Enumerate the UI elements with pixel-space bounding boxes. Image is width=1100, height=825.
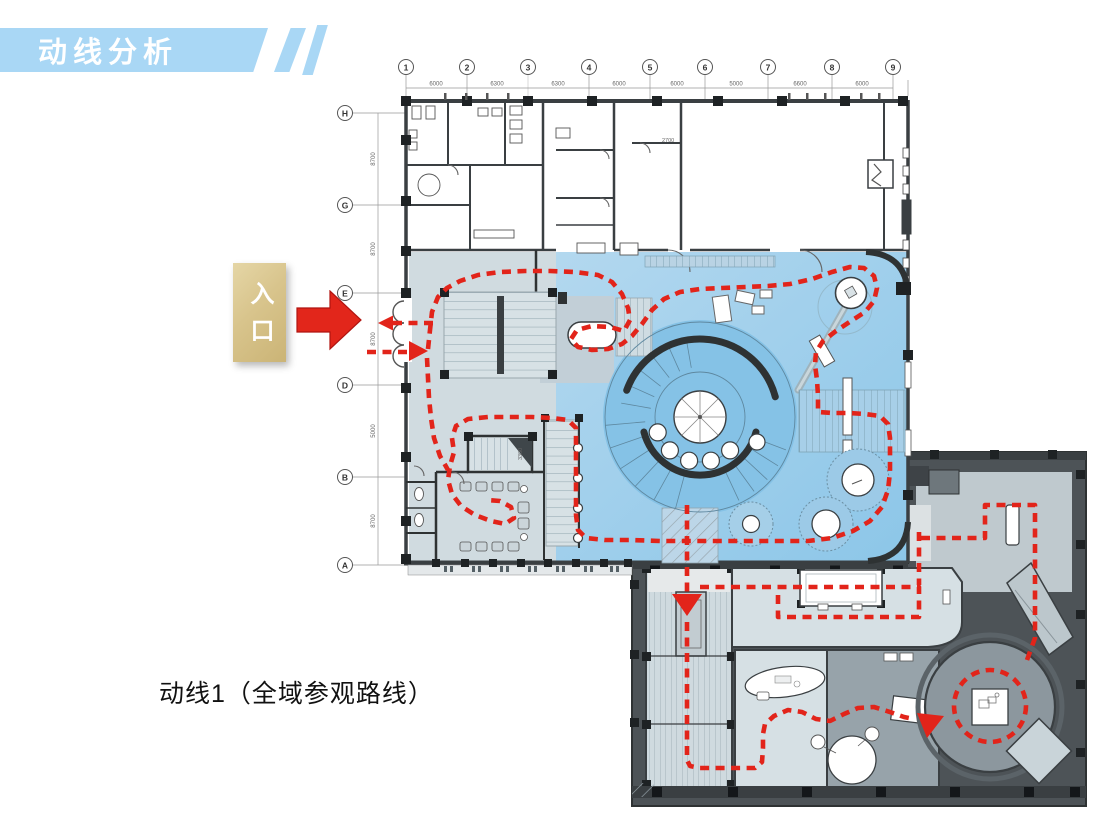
dim-left-1: 8700 [371,152,377,166]
grid-bubble-7: 7 [766,63,771,73]
grid-bubble-8: 8 [830,63,835,73]
annex-display-case [1006,505,1019,545]
section-banner: 动线分析 [0,28,268,72]
grid-bubble-D: D [342,381,348,391]
dim-top-4: 6000 [612,82,626,88]
dim-top-3: 6300 [551,82,565,88]
grid-bubble-G: G [342,201,349,211]
grid-bubble-3: 3 [526,63,531,73]
small-stair-room: 3300 [464,432,537,472]
dim-left-4: 5000 [371,424,377,438]
entrance-label: 入口 [233,263,286,362]
route-arrow-left [378,316,393,331]
grid-bubble-9: 9 [891,63,896,73]
entrance-label-text: 入口 [242,281,277,355]
dim-top-7: 6600 [793,82,807,88]
section-banner-title: 动线分析 [0,29,178,71]
grid-bubble-4: 4 [587,63,592,73]
dim-left-5: 8700 [371,514,377,528]
route-caption: 动线1（全域参观路线） [159,674,434,710]
down-staircase [541,414,583,548]
entrance-arrow [295,290,365,352]
dim-top-6: 5000 [729,82,743,88]
grid-bubble-A: A [342,561,348,571]
dim-top-1: 6000 [429,82,443,88]
grid-bubble-B: B [342,473,348,483]
grid-bubble-6: 6 [703,63,708,73]
dim-left-2: 8700 [371,242,377,256]
dim-top-8: 6000 [855,82,869,88]
dim-top-2: 6300 [490,82,504,88]
dim-left-3: 8700 [371,332,377,346]
grid-bubble-1: 1 [404,63,409,73]
dim-top-5: 6000 [670,82,684,88]
slide: 1 2 3 4 5 6 7 8 9 6000 6300 6300 6000 60… [0,0,1100,825]
stair-dim-label: 3300 [518,448,524,460]
grid-bubble-H: H [342,109,348,119]
main-staircase [440,288,557,379]
grid-bubble-5: 5 [648,63,653,73]
room-dim-label: 2700 [662,138,674,144]
grid-bubble-2: 2 [465,63,470,73]
annex-table-room [732,566,962,647]
circular-room-core [972,689,1008,725]
